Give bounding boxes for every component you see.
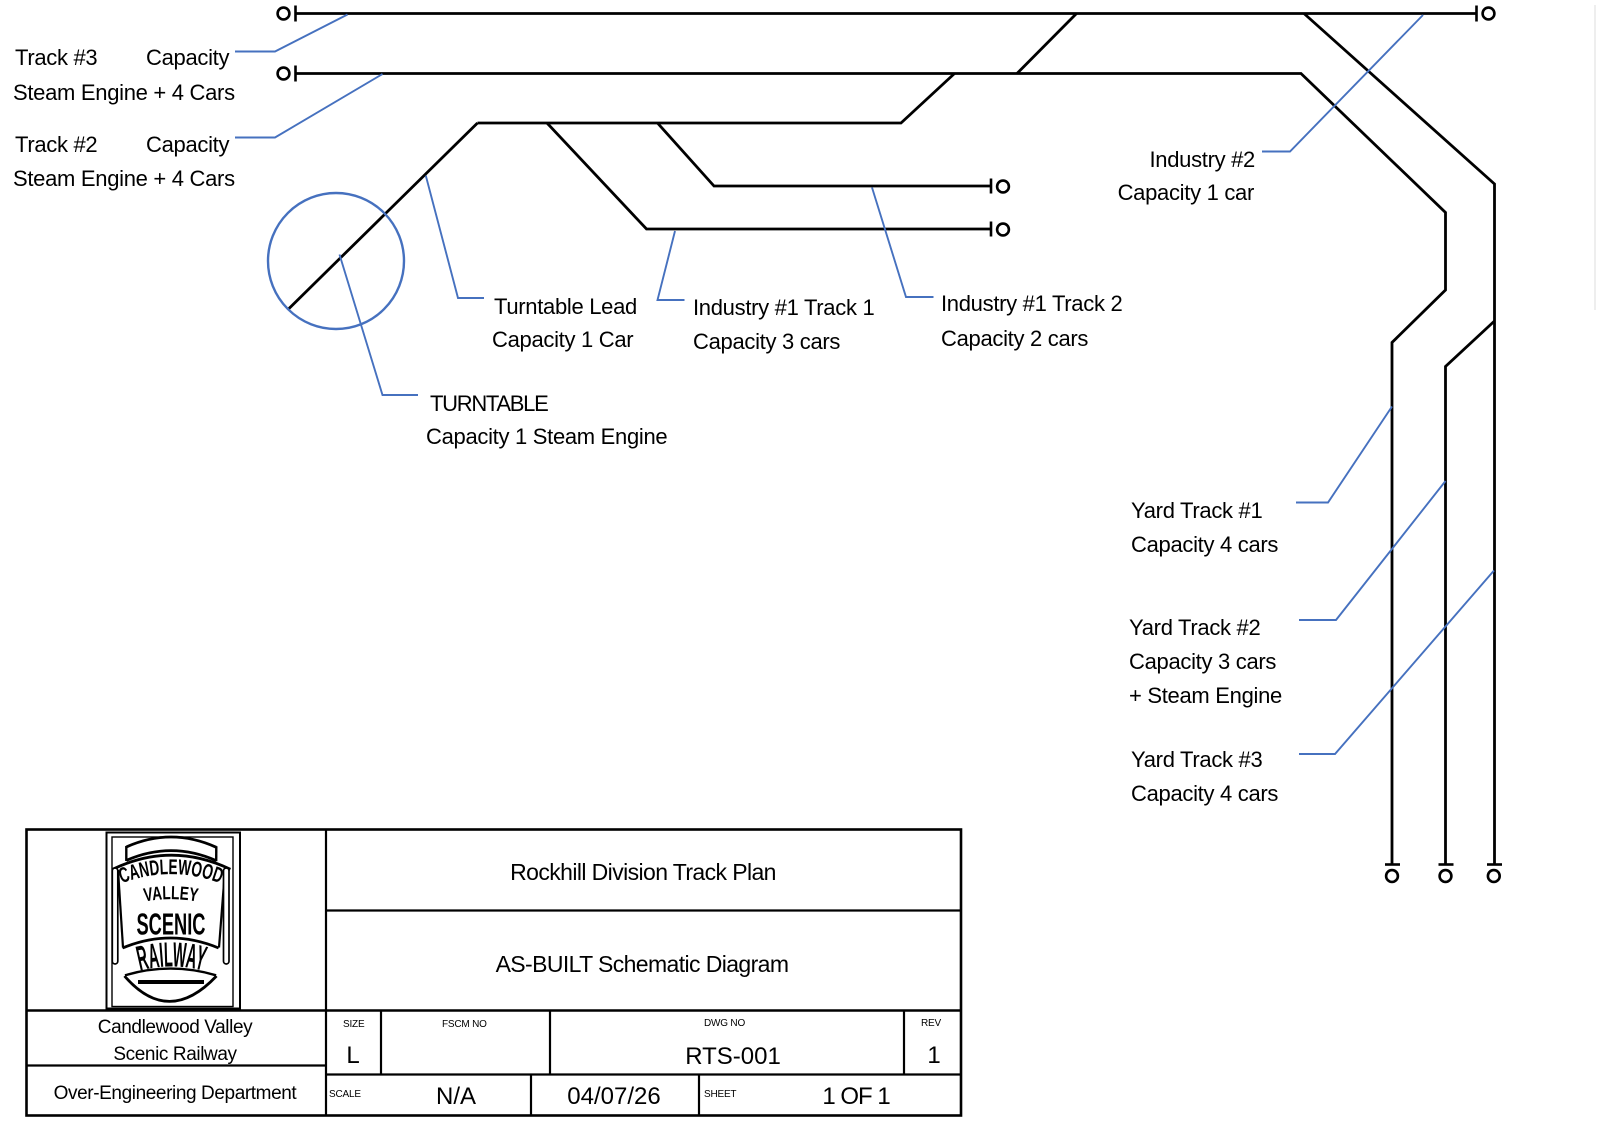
svg-text:Capacity 1 Steam Engine: Capacity 1 Steam Engine xyxy=(426,424,667,449)
svg-text:Scenic Railway: Scenic Railway xyxy=(113,1044,237,1065)
svg-text:SCALE: SCALE xyxy=(329,1089,361,1100)
svg-text:AS-BUILT Schematic Diagram: AS-BUILT Schematic Diagram xyxy=(496,951,789,977)
svg-text:Industry #1 Track 2: Industry #1 Track 2 xyxy=(941,291,1122,316)
svg-text:1 OF 1: 1 OF 1 xyxy=(822,1083,890,1110)
svg-text:Capacity 1 Car: Capacity 1 Car xyxy=(492,327,633,352)
svg-text:Steam Engine + 4 Cars: Steam Engine + 4 Cars xyxy=(13,80,235,105)
svg-text:Track #3: Track #3 xyxy=(15,45,97,70)
svg-text:Candlewood Valley: Candlewood Valley xyxy=(98,1017,253,1038)
svg-text:VALLEY: VALLEY xyxy=(142,883,200,906)
svg-text:Capacity: Capacity xyxy=(146,132,229,157)
svg-text:REV: REV xyxy=(921,1018,941,1029)
svg-text:DWG NO: DWG NO xyxy=(704,1018,745,1029)
svg-text:Track #2: Track #2 xyxy=(15,132,97,157)
svg-text:Rockhill Division Track Plan: Rockhill Division Track Plan xyxy=(510,859,776,885)
svg-text:Capacity: Capacity xyxy=(146,45,229,70)
svg-text:Capacity 2 cars: Capacity 2 cars xyxy=(941,326,1088,351)
svg-text:1: 1 xyxy=(927,1042,940,1069)
svg-text:Steam Engine + 4 Cars: Steam Engine + 4 Cars xyxy=(13,166,235,191)
svg-text:Capacity 3 cars: Capacity 3 cars xyxy=(1129,649,1276,674)
svg-text:Turntable Lead: Turntable Lead xyxy=(494,294,637,319)
svg-text:Yard Track #2: Yard Track #2 xyxy=(1129,615,1260,640)
svg-text:04/07/26: 04/07/26 xyxy=(567,1083,660,1110)
svg-text:N/A: N/A xyxy=(436,1083,476,1110)
svg-text:Capacity 1 car: Capacity 1 car xyxy=(1118,180,1254,205)
svg-text:FSCM NO: FSCM NO xyxy=(442,1019,487,1030)
svg-text:L: L xyxy=(346,1042,359,1069)
svg-text:TURNTABLE: TURNTABLE xyxy=(430,391,548,416)
svg-text:Over-Engineering Department: Over-Engineering Department xyxy=(54,1083,298,1104)
svg-text:+ Steam Engine: + Steam Engine xyxy=(1129,683,1282,708)
svg-text:Capacity 4 cars: Capacity 4 cars xyxy=(1131,532,1278,557)
svg-text:RTS-001: RTS-001 xyxy=(685,1043,781,1070)
svg-text:Capacity 3 cars: Capacity 3 cars xyxy=(693,329,840,354)
svg-text:Yard Track #3: Yard Track #3 xyxy=(1131,747,1262,772)
svg-text:Industry #1 Track 1: Industry #1 Track 1 xyxy=(693,295,874,320)
svg-text:SIZE: SIZE xyxy=(343,1019,365,1030)
svg-text:Capacity 4 cars: Capacity 4 cars xyxy=(1131,781,1278,806)
svg-text:Yard Track #1: Yard Track #1 xyxy=(1131,498,1262,523)
svg-text:SHEET: SHEET xyxy=(704,1089,736,1100)
svg-text:Industry #2: Industry #2 xyxy=(1149,147,1255,172)
